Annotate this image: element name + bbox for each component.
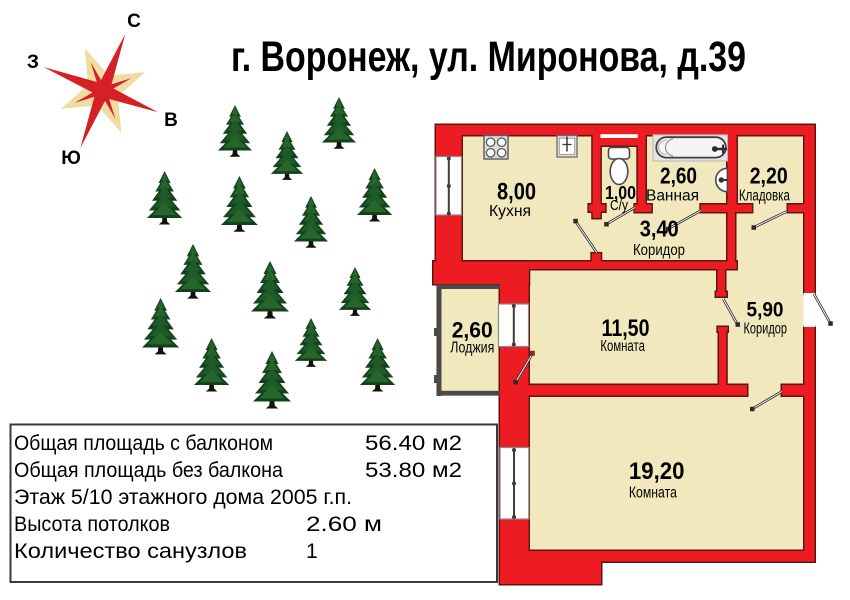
svg-text:Комната: Комната bbox=[629, 485, 677, 502]
svg-text:3,40: 3,40 bbox=[640, 216, 679, 242]
svg-text:2.60 м: 2.60 м bbox=[306, 513, 382, 536]
svg-text:С: С bbox=[127, 11, 141, 32]
svg-text:Общая площадь с балконом: Общая площадь с балконом bbox=[14, 432, 273, 455]
svg-text:Ванная: Ванная bbox=[646, 188, 699, 205]
svg-text:56.40 м2: 56.40 м2 bbox=[365, 432, 462, 455]
svg-text:53.80 м2: 53.80 м2 bbox=[365, 459, 462, 482]
svg-text:Коридор: Коридор bbox=[633, 242, 685, 259]
svg-text:2,20: 2,20 bbox=[750, 163, 788, 189]
svg-text:Кладовка: Кладовка bbox=[739, 188, 790, 205]
svg-text:Количество санузлов: Количество санузлов bbox=[14, 540, 247, 563]
svg-text:С/у: С/у bbox=[610, 198, 629, 214]
svg-text:З: З bbox=[27, 52, 39, 73]
svg-text:Лоджия: Лоджия bbox=[450, 340, 494, 357]
svg-text:Ю: Ю bbox=[61, 148, 81, 169]
svg-text:1: 1 bbox=[306, 540, 318, 563]
svg-text:Общая площадь без балкона: Общая площадь без балкона bbox=[14, 459, 283, 482]
svg-text:Коридор: Коридор bbox=[744, 321, 788, 338]
svg-text:19,20: 19,20 bbox=[629, 458, 685, 485]
svg-text:Этаж 5/10 этажного дома 2005 г: Этаж 5/10 этажного дома 2005 г.п. bbox=[14, 486, 352, 509]
svg-text:г. Воронеж, ул. Миронова, д.39: г. Воронеж, ул. Миронова, д.39 bbox=[231, 33, 746, 81]
svg-text:В: В bbox=[164, 110, 178, 131]
svg-text:Комната: Комната bbox=[600, 338, 645, 355]
svg-text:5,90: 5,90 bbox=[747, 298, 784, 322]
svg-text:Высота потолков: Высота потолков bbox=[14, 513, 170, 536]
svg-text:8,00: 8,00 bbox=[497, 179, 536, 206]
svg-text:2,60: 2,60 bbox=[660, 163, 697, 189]
svg-text:Кухня: Кухня bbox=[489, 203, 531, 220]
